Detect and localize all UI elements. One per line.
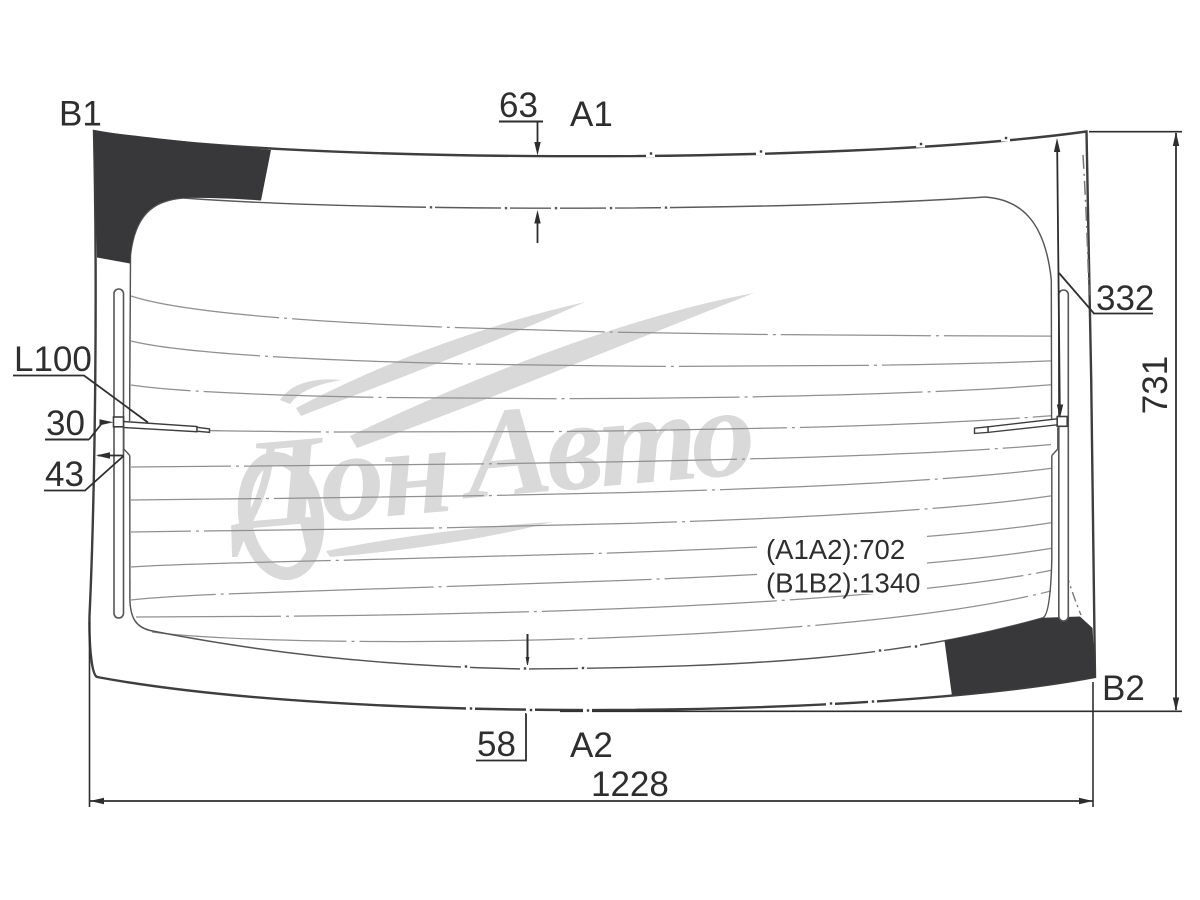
svg-text:A2: A2 (570, 726, 613, 765)
svg-text:(A1A2):702: (A1A2):702 (766, 534, 905, 565)
svg-text:A1: A1 (570, 95, 613, 134)
svg-text:Дон: Дон (219, 397, 454, 558)
svg-text:332: 332 (1096, 279, 1154, 318)
svg-text:(B1B2):1340: (B1B2):1340 (766, 568, 920, 599)
svg-text:B1: B1 (59, 95, 102, 134)
svg-text:58: 58 (477, 725, 516, 764)
svg-text:Авто: Авто (453, 360, 757, 527)
svg-text:L100: L100 (14, 340, 92, 379)
svg-text:30: 30 (46, 404, 85, 443)
svg-text:1228: 1228 (591, 765, 669, 804)
svg-text:43: 43 (45, 455, 84, 494)
svg-text:731: 731 (1136, 356, 1175, 414)
svg-text:B2: B2 (1102, 669, 1145, 708)
svg-text:63: 63 (499, 86, 538, 125)
